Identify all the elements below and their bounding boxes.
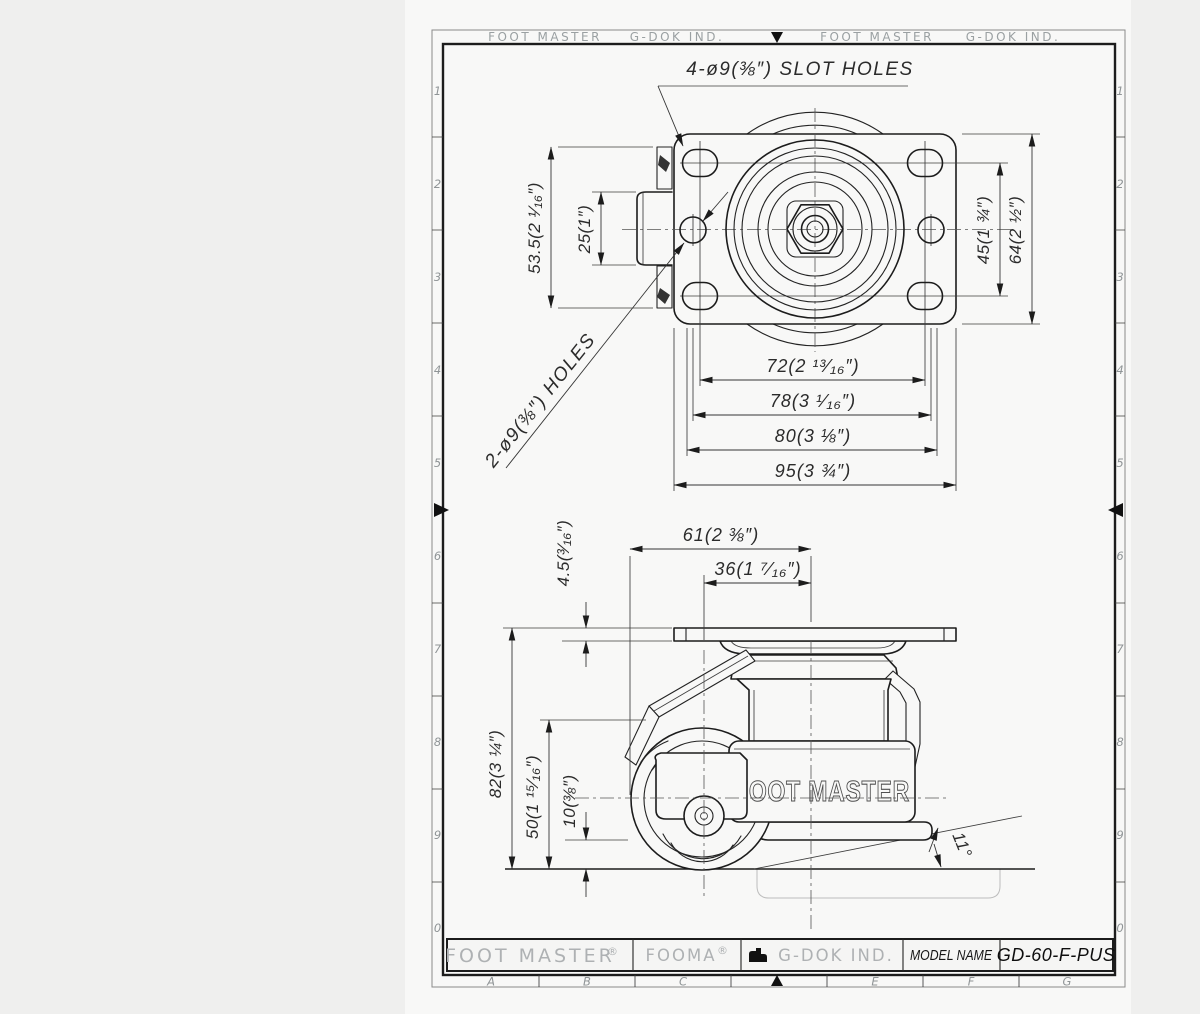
cad-drawing: FOOT MASTER G-DOK IND. FOOT MASTER G-DOK… bbox=[0, 0, 1200, 1014]
dim-4-5: 4.5(³⁄₁₆″) bbox=[554, 520, 573, 587]
svg-text:A: A bbox=[486, 975, 495, 989]
svg-text:C: C bbox=[679, 975, 687, 989]
paper bbox=[405, 0, 1131, 1014]
emboss-text: FOOT MASTER bbox=[734, 776, 910, 808]
svg-text:6: 6 bbox=[434, 549, 441, 563]
dim-61: 61(2 ⅜″) bbox=[683, 525, 759, 545]
svg-text:9: 9 bbox=[434, 828, 441, 842]
svg-text:3: 3 bbox=[1116, 270, 1123, 284]
company-text: G-DOK IND. bbox=[778, 946, 894, 965]
model-name-value: GD-60-F-PUS bbox=[997, 945, 1116, 965]
top-label-4: G-DOK IND. bbox=[966, 30, 1061, 44]
model-name-label: MODEL NAME bbox=[910, 947, 993, 964]
top-label-2: G-DOK IND. bbox=[630, 30, 725, 44]
dim-25: 25(1″) bbox=[575, 205, 594, 255]
svg-text:2: 2 bbox=[1116, 177, 1123, 191]
brand-text: FOOT MASTER bbox=[445, 945, 615, 967]
svg-text:4: 4 bbox=[434, 363, 441, 377]
svg-text:0: 0 bbox=[434, 921, 441, 935]
svg-text:5: 5 bbox=[1116, 456, 1123, 470]
svg-text:1: 1 bbox=[434, 84, 441, 98]
svg-text:3: 3 bbox=[434, 270, 441, 284]
svg-text:7: 7 bbox=[1116, 642, 1124, 656]
dim-82: 82(3 ¼″) bbox=[486, 730, 505, 799]
dim-78: 78(3 ¹⁄₁₆″) bbox=[770, 391, 856, 411]
svg-text:4: 4 bbox=[1116, 363, 1123, 377]
svg-text:5: 5 bbox=[434, 456, 441, 470]
svg-text:8: 8 bbox=[1116, 735, 1123, 749]
dim-10: 10(⅜″) bbox=[560, 774, 579, 827]
svg-text:9: 9 bbox=[1116, 828, 1123, 842]
slot-callout-text: 4-ø9(⅜″) SLOT HOLES bbox=[686, 59, 913, 80]
svg-text:F: F bbox=[968, 975, 975, 989]
top-label-3: FOOT MASTER bbox=[820, 30, 934, 44]
top-plate-side bbox=[674, 628, 956, 641]
top-label-1: FOOT MASTER bbox=[488, 30, 602, 44]
svg-text:7: 7 bbox=[434, 642, 442, 656]
neck-band bbox=[737, 679, 891, 741]
brand-registered-mark: ® bbox=[607, 945, 618, 958]
dim-36: 36(1 ⁷⁄₁₆″) bbox=[714, 559, 801, 579]
svg-text:G: G bbox=[1063, 975, 1072, 989]
dim-95: 95(3 ¾″) bbox=[775, 461, 851, 481]
dim-53-5: 53.5(2 ¹⁄₁₆″) bbox=[525, 182, 544, 274]
svg-text:0: 0 bbox=[1116, 921, 1123, 935]
dim-64: 64(2 ½″) bbox=[1006, 196, 1025, 265]
svg-text:2: 2 bbox=[434, 177, 441, 191]
drawing-sheet: FOOT MASTER G-DOK IND. FOOT MASTER G-DOK… bbox=[0, 0, 1200, 1014]
svg-text:6: 6 bbox=[1116, 549, 1123, 563]
cap-band bbox=[731, 655, 898, 679]
foot-pad bbox=[757, 822, 932, 840]
fooma-text: FOOMA bbox=[646, 946, 717, 965]
svg-text:E: E bbox=[871, 975, 879, 989]
dim-50: 50(1 ¹⁵⁄₁₆″) bbox=[523, 755, 542, 839]
svg-text:B: B bbox=[583, 975, 591, 989]
title-block: FOOT MASTER ® FOOMA ® G-DOK IND. MODEL N… bbox=[445, 939, 1115, 971]
dim-45: 45(1 ¾″) bbox=[974, 196, 993, 265]
dim-72: 72(2 ¹³⁄₁₆″) bbox=[766, 356, 859, 376]
svg-text:8: 8 bbox=[434, 735, 441, 749]
svg-text:1: 1 bbox=[1116, 84, 1123, 98]
dim-80: 80(3 ⅛″) bbox=[775, 426, 851, 446]
fooma-registered-mark: ® bbox=[717, 944, 728, 957]
